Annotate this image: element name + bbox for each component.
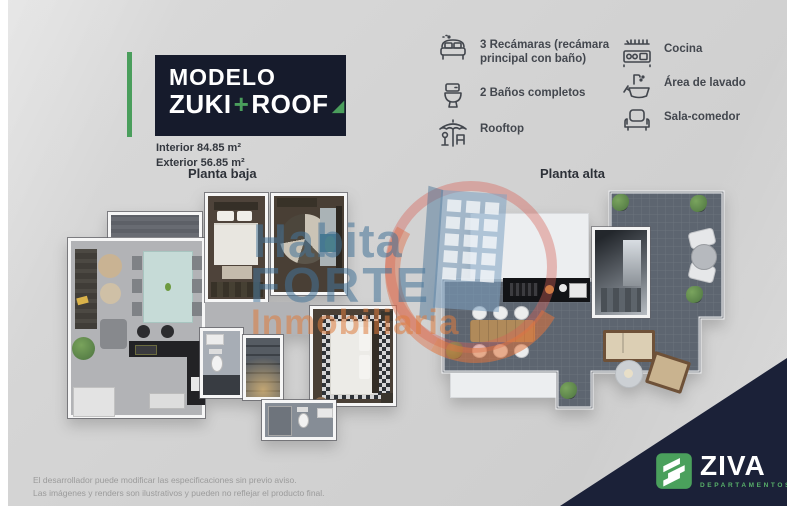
feature-rooftop: Rooftop [436,118,636,150]
plant [72,337,95,360]
blanket [320,234,336,252]
planta-baja-label: Planta baja [188,166,257,181]
stairs [243,335,283,400]
planta-alta-label: Planta alta [540,166,605,181]
feature-laundry: Área de lavado [620,72,780,102]
outdoor-kitchen-counter [503,278,590,302]
feature-kitchen: Cocina [620,38,780,68]
bed [214,223,258,265]
feature-bedrooms: 3 Recámaras (recámara principal con baño… [436,34,636,67]
plate [559,284,567,292]
pillow [359,355,370,379]
brand-name: ZIVA [700,452,787,480]
cushion-seam [622,333,624,353]
chair [514,306,529,320]
toilet-tank [209,349,222,354]
green-accent-bar [127,52,132,137]
feature-rooftop-label: Rooftop [480,118,524,136]
headboard [336,206,342,268]
chair [132,302,142,316]
feature-bathrooms: 2 Baños completos [436,82,636,112]
interior-area: Interior 84.85 m² [156,141,245,156]
stair-light [623,240,641,286]
plant [563,386,576,399]
dining-table [143,251,193,323]
stairwell [592,227,650,318]
planta-baja-floorplan [65,190,405,454]
laundry-sink-icon [620,72,654,102]
stove-top [135,345,157,355]
bar-stool [161,325,174,338]
balcony [108,212,202,240]
feature-laundry-label: Área de lavado [664,72,746,90]
chair [192,279,202,293]
ziva-logomark-icon [655,452,693,490]
sink [206,334,224,345]
bathroom-2 [262,400,336,440]
pillow [217,211,234,221]
master-bedroom [310,306,396,406]
rug [222,266,252,279]
pouf [100,283,121,304]
sink [317,408,333,418]
closet [73,387,115,417]
grill [510,283,538,296]
disclaimer-line1: El desarrollador puede modificar las esp… [33,474,325,487]
chair [132,256,142,270]
feature-bedrooms-label: 3 Recámaras (recámara principal con baño… [480,34,632,67]
chair [493,344,508,358]
wardrobe [277,198,317,207]
outdoor-dining-table [470,320,535,342]
coffee-table [615,360,643,388]
pillow [359,327,370,351]
toilet [298,413,309,428]
sofa-icon [620,106,654,136]
shower [268,406,292,436]
round-table [691,244,717,270]
bed-icon [436,34,470,64]
plant [693,199,706,212]
rooftop-umbrella-icon [436,118,470,150]
headboard [372,321,379,393]
triangle-accent-icon: ◢ [328,98,344,115]
outdoor-sofa [603,330,655,362]
feature-livingroom: Sala-comedor [620,106,780,136]
terrace-deck [425,190,755,412]
planta-alta-floorplan [425,190,755,412]
chair [192,256,202,270]
chair [472,306,487,320]
plant [449,346,462,359]
toilet-icon [436,82,470,112]
kitchen-stove-icon [620,38,654,68]
plus-accent: + [232,89,252,119]
cabinet [149,393,185,409]
ziva-wordmark: ZIVA DEPARTAMENTOS [700,452,787,489]
shower-floor [203,375,240,395]
feature-livingroom-label: Sala-comedor [664,106,740,124]
feature-kitchen-label: Cocina [664,38,702,56]
plant [615,198,628,211]
model-title-line2: ZUKI+ROOF◢ [169,90,346,120]
bed [320,208,336,266]
disclaimer-line2: Las imágenes y renders son ilustrativos … [33,487,325,500]
steps [601,288,641,312]
disclaimer: El desarrollador puede modificar las esp… [33,474,325,500]
chair [493,306,508,320]
toilet [211,355,223,372]
plate [545,285,554,294]
armchair [100,319,127,349]
bedroom-2 [271,193,347,295]
bar-stool [137,325,150,338]
chair [514,344,529,358]
plant [689,290,702,303]
feature-bathrooms-label: 2 Baños completos [480,82,630,100]
pouf [98,254,122,278]
brand-subtitle: DEPARTAMENTOS [700,482,787,489]
headboard [214,202,258,210]
chair [132,279,142,293]
flyer-canvas: MODELO ZUKI+ROOF◢ Interior 84.85 m² Exte… [8,0,787,506]
chair [192,302,202,316]
model-title-line1: MODELO [169,65,346,90]
living-dining-room [68,238,205,418]
bedroom-1 [205,193,268,302]
nightstand [381,393,393,403]
sink [569,283,587,298]
pillow [237,211,252,221]
table-decor [624,369,633,378]
chair [472,344,487,358]
centerpiece [165,283,171,291]
model-title-box: MODELO ZUKI+ROOF◢ [155,55,346,136]
nightstand [381,311,393,321]
ziva-logo: ZIVA DEPARTAMENTOS [655,452,787,490]
wardrobe [211,282,263,297]
tv-console [75,249,97,329]
toilet-tank [297,407,308,412]
bathroom-1 [200,328,243,398]
